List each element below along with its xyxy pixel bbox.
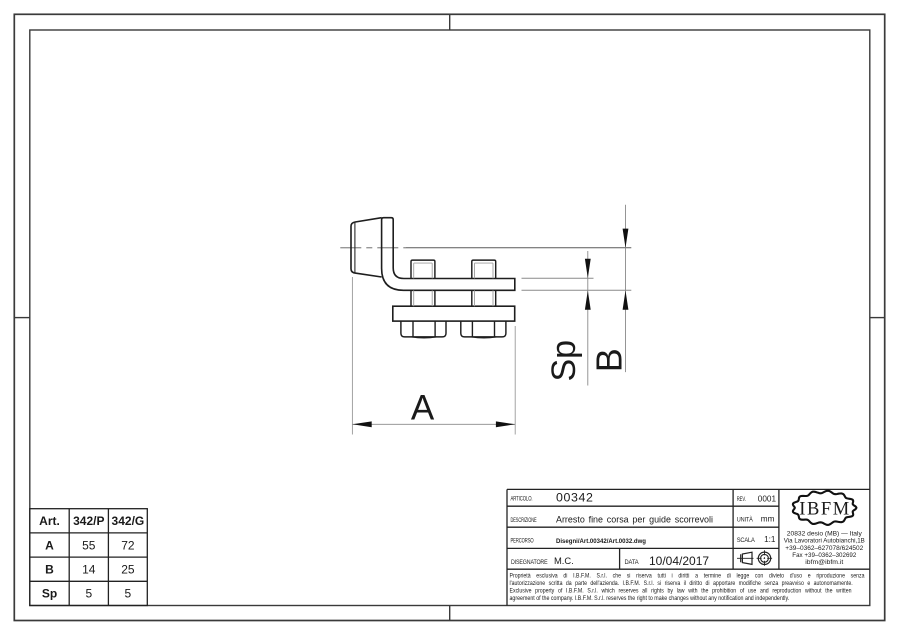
svg-text:DESCRIZIONE: DESCRIZIONE	[511, 518, 537, 524]
svg-text:B: B	[588, 348, 629, 372]
svg-text:B: B	[45, 563, 54, 577]
svg-text:agreement of the company. I.B.: agreement of the company. I.B.F.M. S.r.l…	[510, 596, 790, 602]
svg-text:mm: mm	[761, 515, 775, 524]
svg-text:342/P: 342/P	[73, 514, 104, 528]
svg-text:Sp: Sp	[545, 340, 583, 382]
svg-text:1:1: 1:1	[764, 535, 776, 544]
svg-text:A: A	[45, 538, 54, 552]
svg-text:ibfm@ibfm.it: ibfm@ibfm.it	[805, 559, 843, 566]
svg-text:Disegni/Art.00342/Art.0032.dwg: Disegni/Art.00342/Art.0032.dwg	[556, 538, 646, 545]
svg-text:5: 5	[125, 587, 132, 601]
svg-text:UNITÀ: UNITÀ	[737, 517, 753, 524]
svg-text:SCALA: SCALA	[737, 538, 755, 544]
svg-text:0001: 0001	[758, 495, 777, 504]
svg-text:Sp: Sp	[42, 587, 57, 601]
svg-text:Fax +39–0362–302692: Fax +39–0362–302692	[792, 552, 856, 559]
svg-text:14: 14	[82, 563, 96, 577]
svg-text:Arresto fine corsa per guide s: Arresto fine corsa per guide scorrevoli	[556, 515, 713, 526]
svg-text:Proprietà esclusiva di I.B.F.M: Proprietà esclusiva di I.B.F.M. S.r.l. c…	[510, 573, 866, 579]
svg-text:342/G: 342/G	[112, 514, 145, 528]
svg-text:+39–0362–627078/624502: +39–0362–627078/624502	[785, 545, 864, 552]
svg-text:Art.: Art.	[39, 514, 60, 528]
svg-text:A: A	[411, 389, 435, 428]
svg-text:Via Lavoratori Autobianchi,1B: Via Lavoratori Autobianchi,1B	[784, 538, 865, 545]
svg-text:DATA: DATA	[625, 560, 639, 566]
svg-text:00342: 00342	[556, 491, 593, 505]
svg-text:25: 25	[121, 563, 135, 577]
svg-text:REV.: REV.	[737, 497, 746, 503]
svg-text:ARTICOLO.: ARTICOLO.	[511, 497, 533, 503]
svg-text:PERCORSO: PERCORSO	[511, 539, 534, 545]
svg-text:DISEGNATORE: DISEGNATORE	[511, 560, 548, 566]
svg-text:M.C.: M.C.	[554, 555, 574, 566]
svg-text:Exclusive property of I.B.F.M.: Exclusive property of I.B.F.M. S.r.l. wh…	[510, 588, 852, 594]
svg-text:5: 5	[85, 587, 92, 601]
svg-text:72: 72	[121, 538, 135, 552]
svg-text:10/04/2017: 10/04/2017	[649, 554, 709, 568]
svg-text:IBFM: IBFM	[799, 499, 849, 519]
svg-text:55: 55	[82, 538, 96, 552]
svg-text:l'autorizzazione scritta da pa: l'autorizzazione scritta da parte dell'a…	[510, 581, 854, 587]
svg-text:20832 desio (MB) — Italy: 20832 desio (MB) — Italy	[787, 530, 863, 537]
